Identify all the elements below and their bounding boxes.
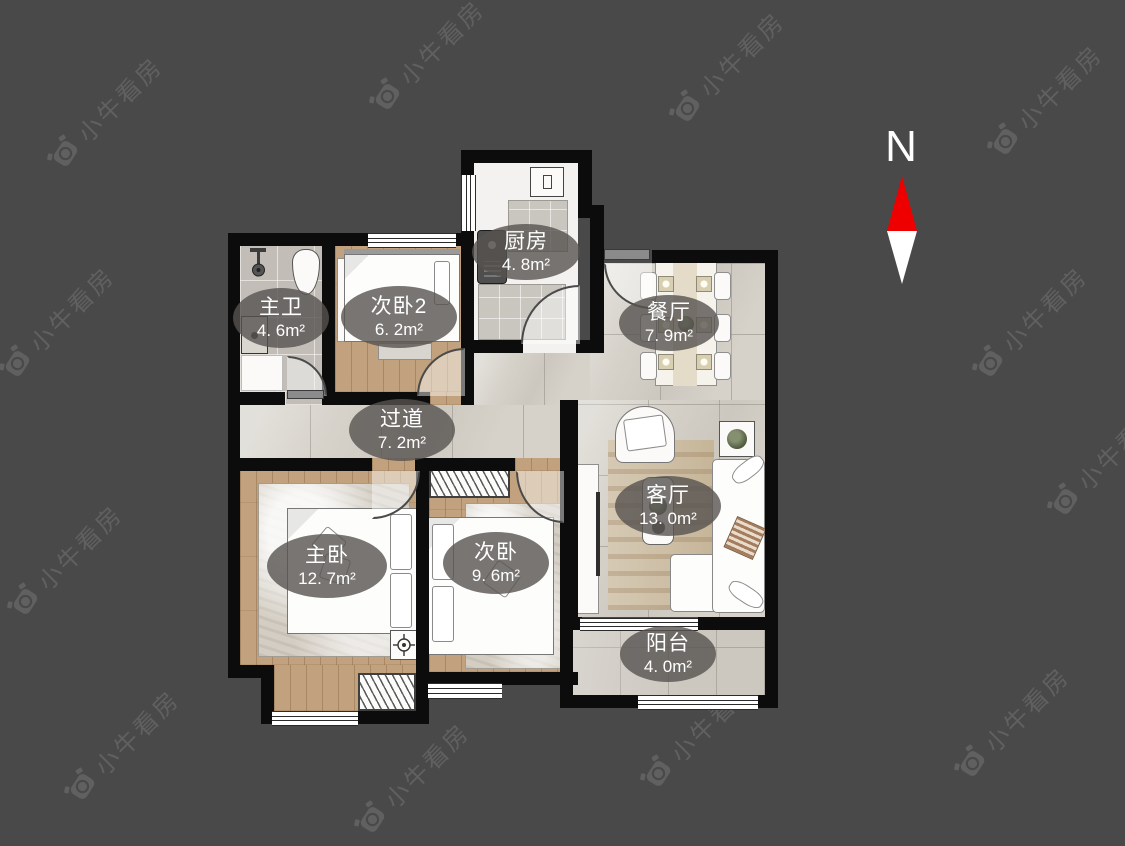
room-name: 厨房 [504,230,548,254]
window-balcony [638,695,758,710]
seat-pad [658,354,674,370]
wall [590,218,604,353]
room-label-master-bath: 主卫 4. 6m² [233,288,329,348]
room-label-kitchen: 厨房 4. 8m² [472,224,580,280]
wall [415,458,515,471]
seat-pad [696,354,712,370]
dining-chair [714,272,731,300]
floorplan-page: { "colors": { "background": "#4a494a", "… [0,0,1125,844]
door-leaf-entry [604,249,650,260]
needle-south-half [887,231,917,284]
room-name: 次卧 [474,541,518,565]
wall [590,250,604,263]
wall [461,150,592,163]
room-name: 主卧 [305,544,349,568]
room-area: 6. 2m² [375,320,423,340]
wall [698,617,768,630]
seat-pad [658,276,674,292]
seat-pad [696,276,712,292]
room-name: 客厅 [646,484,690,508]
wall [228,392,285,405]
wall [240,458,372,471]
room-area: 4. 8m² [502,255,550,275]
room-area: 13. 0m² [639,509,697,529]
room-name: 过道 [380,408,424,432]
needle-north-half [887,176,917,231]
room-area: 12. 7m² [298,569,356,589]
room-area: 4. 6m² [257,321,305,341]
window-master-bedroom [272,711,358,726]
room-area: 4. 0m² [644,657,692,677]
room-label-master-bedroom: 主卧 12. 7m² [267,534,387,598]
window-bedroom3 [428,683,502,699]
compass-needle-icon [884,174,920,286]
dining-chair [714,352,731,380]
shower-icon [246,246,272,282]
dining-chair [640,352,657,380]
room-name: 阳台 [646,632,690,656]
wall [228,233,240,678]
wall [578,205,604,218]
crosshair-target-icon [390,630,417,660]
wall [652,250,778,263]
room-area: 9. 6m² [472,566,520,586]
tv-icon [596,492,600,576]
window-bedroom2 [368,233,456,248]
room-name: 餐厅 [647,301,691,325]
wall [765,250,778,708]
kitchen-appliance-box [530,167,564,197]
room-name: 次卧2 [371,295,428,319]
master-wardrobe [358,673,416,711]
room-label-living: 客厅 13. 0m² [615,476,721,536]
armchair-cushion [623,414,667,451]
bedroom3-pillow [432,586,454,642]
master-pillow [390,514,412,570]
room-label-hallway: 过道 7. 2m² [349,399,455,461]
compass-north-label: N [885,122,917,172]
window-kitchen [461,175,476,231]
doorway-bedroom3 [515,458,560,471]
room-label-bedroom3: 次卧 9. 6m² [443,532,549,594]
room-area: 7. 9m² [645,326,693,346]
door-leaf-master-bath [287,390,324,399]
master-pillow [390,573,412,628]
room-area: 7. 2m² [378,433,426,453]
shower-tray [241,355,283,391]
room-label-bedroom2: 次卧2 6. 2m² [341,286,457,348]
entry-strip-floor [474,353,590,405]
appliance-icon [543,175,552,189]
room-label-balcony: 阳台 4. 0m² [620,626,716,682]
room-label-dining: 餐厅 7. 9m² [619,295,719,351]
wall [474,340,523,353]
room-name: 主卫 [259,296,303,320]
side-table-plant [727,429,747,449]
